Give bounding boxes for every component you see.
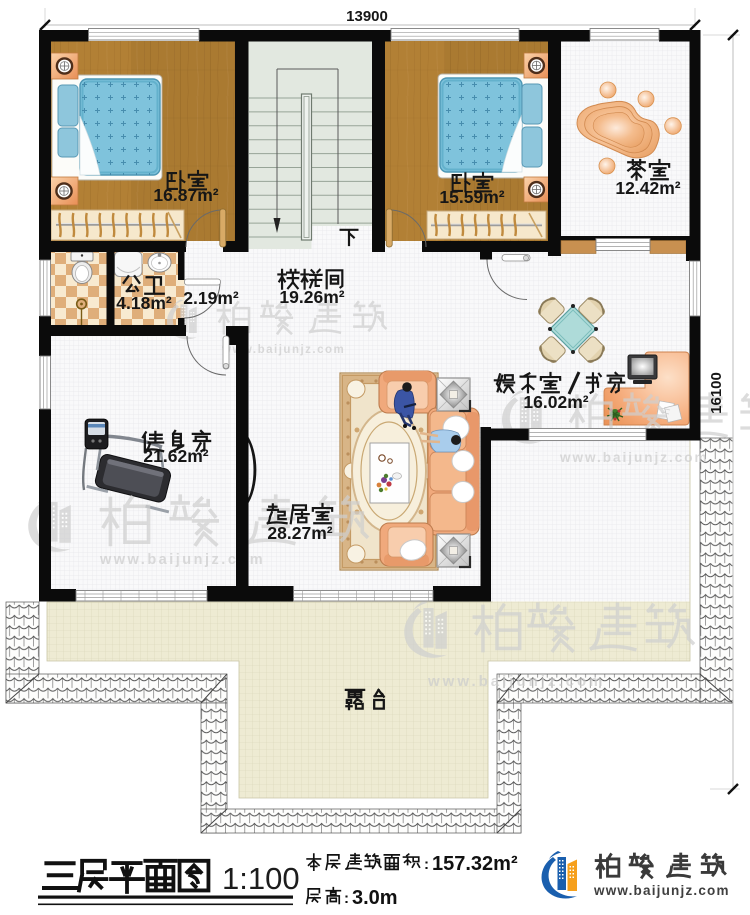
- svg-text:157.32m²: 157.32m²: [432, 853, 518, 875]
- svg-text:13900: 13900: [346, 8, 388, 25]
- svg-text:4.18m²: 4.18m²: [116, 293, 172, 313]
- svg-text::: :: [344, 890, 349, 907]
- svg-text:28.27m²: 28.27m²: [267, 523, 332, 543]
- svg-text:16.87m²: 16.87m²: [153, 185, 218, 205]
- svg-text:16100: 16100: [708, 372, 725, 414]
- svg-text:2.19m²: 2.19m²: [183, 288, 239, 308]
- svg-text:3.0m: 3.0m: [352, 887, 398, 909]
- svg-text::: :: [424, 856, 429, 873]
- svg-text:19.26m²: 19.26m²: [279, 287, 344, 307]
- svg-text:www.baijunjz.com: www.baijunjz.com: [593, 883, 730, 898]
- svg-text:15.59m²: 15.59m²: [439, 187, 504, 207]
- svg-text:16.02m²: 16.02m²: [523, 392, 588, 412]
- svg-text:www.baijunjz.com: www.baijunjz.com: [559, 450, 709, 465]
- svg-text:www.baijunjz.com: www.baijunjz.com: [427, 673, 605, 690]
- svg-text:21.62m²: 21.62m²: [143, 446, 208, 466]
- svg-text:1:100: 1:100: [222, 861, 300, 896]
- svg-text:12.42m²: 12.42m²: [615, 178, 680, 198]
